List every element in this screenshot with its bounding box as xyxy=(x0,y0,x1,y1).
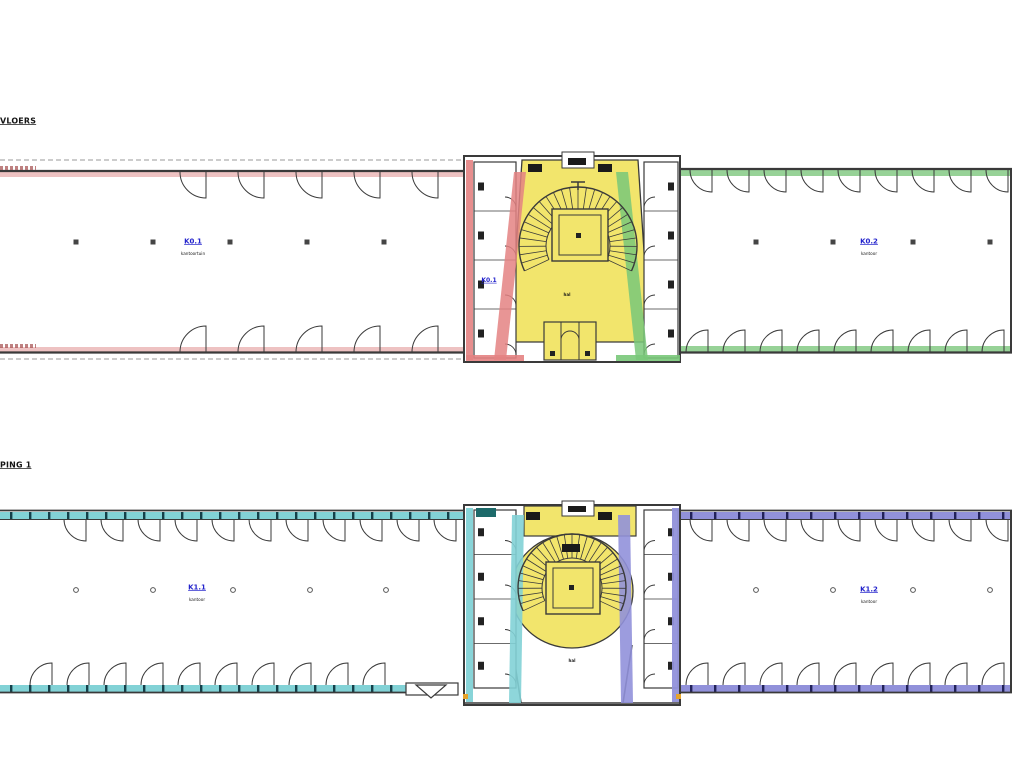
first-columns-left xyxy=(74,588,389,593)
hall-label-ground: hal xyxy=(564,293,571,297)
ground-right-doors xyxy=(686,170,1008,352)
ground-elevator xyxy=(552,209,608,261)
ground-columns-left xyxy=(74,240,387,245)
room-link-k0-core[interactable]: K0.1 xyxy=(481,278,496,284)
floor-plan-drawing xyxy=(0,0,1024,768)
plan-title-ground: VLOERS xyxy=(0,117,36,125)
room-link-k0-1[interactable]: K0.1 xyxy=(184,239,202,246)
first-left-doors xyxy=(30,519,456,685)
room-type-k0-1: kantoortuin xyxy=(181,252,205,256)
room-type-k0-2: kantoor xyxy=(861,252,877,256)
ground-left-doors xyxy=(180,172,438,352)
annotation-text-marks xyxy=(0,166,36,170)
room-type-k1-2: kantoor xyxy=(861,600,877,604)
first-right-doors xyxy=(686,519,1008,685)
annotation-text-marks xyxy=(0,344,36,348)
room-type-k1-1: kantoor xyxy=(189,598,205,602)
floor-plan-page: VLOERS PING 1 K0.1 kantoortuin K0.2 kant… xyxy=(0,0,1024,768)
hall-label-first: hal xyxy=(569,659,576,663)
plan-title-first: PING 1 xyxy=(0,461,31,469)
room-link-k1-2[interactable]: K1.2 xyxy=(860,587,878,594)
room-link-k0-2[interactable]: K0.2 xyxy=(860,239,878,246)
ground-toilets-right xyxy=(644,162,678,358)
first-entrance xyxy=(406,683,458,698)
room-link-k1-1[interactable]: K1.1 xyxy=(188,585,206,592)
